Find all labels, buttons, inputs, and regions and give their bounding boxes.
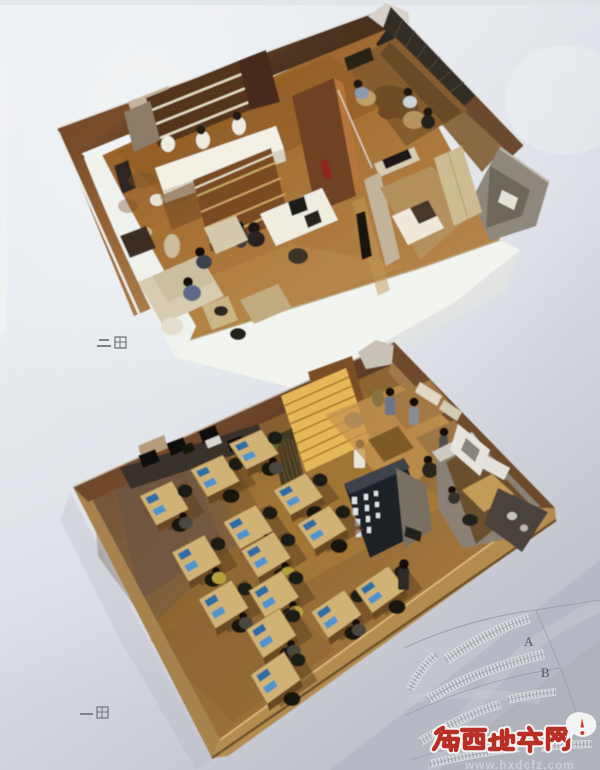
svg-text:B: B: [541, 665, 550, 680]
svg-text:www.hxdcfz.com: www.hxdcfz.com: [464, 760, 575, 770]
svg-text:A: A: [524, 634, 534, 649]
